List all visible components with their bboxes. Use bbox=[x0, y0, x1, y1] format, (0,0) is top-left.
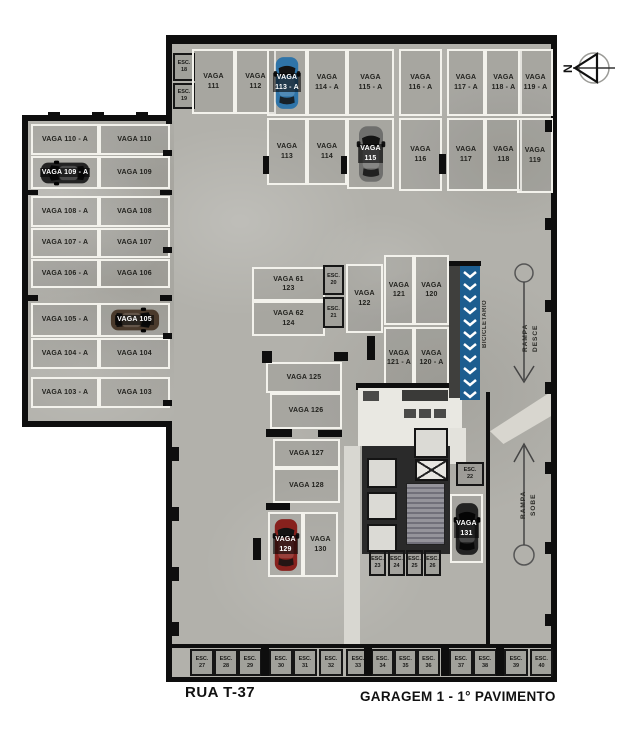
pillar bbox=[545, 120, 552, 132]
wall-top bbox=[166, 35, 557, 44]
pillar bbox=[172, 507, 179, 521]
esc-label: ESC. 18 bbox=[178, 60, 191, 74]
ramp-up-label: RAMPA SOBE bbox=[519, 476, 539, 534]
plan-caption: GARAGEM 1 - 1° PAVIMENTO bbox=[360, 689, 556, 704]
pillar bbox=[163, 247, 172, 253]
esc-label: ESC. 19 bbox=[178, 89, 191, 103]
stall-vaga-118a: VAGA 118 - A bbox=[485, 49, 522, 116]
pillar bbox=[545, 542, 552, 554]
pillar bbox=[261, 648, 269, 676]
stall-vaga-105: VAGA 105 bbox=[99, 303, 170, 337]
stall-vaga-116: VAGA 116 bbox=[399, 118, 442, 191]
stall-vaga-113: VAGA 113 bbox=[267, 118, 307, 185]
stall-vaga-125: VAGA 125 bbox=[266, 362, 342, 393]
corridor-floor bbox=[344, 446, 360, 644]
pillar bbox=[163, 400, 172, 406]
esc-room-39: ESC. 39 bbox=[504, 649, 528, 676]
north-compass: N bbox=[563, 40, 619, 98]
wall-bottom-outer bbox=[166, 677, 557, 682]
stall-vaga-105a: VAGA 105 - A bbox=[31, 303, 99, 337]
pillar bbox=[48, 112, 60, 117]
lobby-table-1 bbox=[404, 409, 416, 418]
stall-vaga-129: VAGA 129 bbox=[268, 512, 303, 577]
esc-room-31: ESC. 31 bbox=[293, 649, 317, 676]
pillar bbox=[341, 156, 347, 174]
esc-room-20: ESC. 20 bbox=[323, 265, 344, 295]
stall-vaga-114: VAGA 114 bbox=[307, 118, 347, 185]
bike-lane bbox=[460, 266, 480, 400]
stall-vaga-104: VAGA 104 bbox=[99, 338, 170, 369]
stall-vaga-131: VAGA 131 bbox=[450, 494, 483, 563]
pillar bbox=[160, 295, 172, 301]
stall-vaga-106: VAGA 106 bbox=[99, 259, 170, 288]
stall-vaga-109: VAGA 109 bbox=[99, 156, 170, 189]
wall-wing-bottom bbox=[22, 421, 172, 427]
lobby-table-3 bbox=[434, 409, 446, 418]
stairwell bbox=[406, 483, 445, 545]
lobby-cabinet bbox=[363, 391, 379, 401]
stall-vaga-127: VAGA 127 bbox=[273, 439, 340, 468]
esc-room-34: ESC. 34 bbox=[371, 649, 394, 676]
compass-n-label: N bbox=[563, 64, 575, 73]
esc-room-38: ESC. 38 bbox=[473, 649, 497, 676]
esc-room-23: ESC. 23 bbox=[369, 550, 386, 576]
bike-chevrons bbox=[460, 266, 480, 400]
stall-vaga-61-123: VAGA 61 123 bbox=[252, 267, 325, 301]
stall-vaga-109a: VAGA 109 - A bbox=[31, 156, 99, 189]
pillar bbox=[545, 382, 552, 394]
pillar bbox=[545, 462, 552, 474]
bike-rack bbox=[449, 266, 460, 398]
lobby-counter bbox=[402, 390, 448, 401]
pillar bbox=[263, 156, 269, 174]
stall-vaga-122: VAGA 122 bbox=[346, 264, 383, 333]
wall-left-upper bbox=[166, 35, 172, 124]
pillar bbox=[441, 648, 449, 676]
pillar bbox=[439, 154, 446, 174]
esc-room-27: ESC. 27 bbox=[190, 649, 214, 676]
stall-vaga-113a: VAGA 113 - A bbox=[267, 49, 307, 116]
pillar bbox=[266, 503, 290, 510]
stall-vaga-110a: VAGA 110 - A bbox=[31, 124, 99, 155]
bike-area-label: BICICLETARIO bbox=[481, 268, 495, 380]
esc-room-21: ESC. 21 bbox=[323, 297, 344, 328]
stall-vaga-104a: VAGA 104 - A bbox=[31, 338, 99, 369]
esc-room-28: ESC. 28 bbox=[214, 649, 238, 676]
stall-vaga-120a: VAGA 120 - A bbox=[414, 327, 449, 389]
esc-room-35: ESC. 35 bbox=[394, 649, 417, 676]
esc-room-24: ESC. 24 bbox=[388, 550, 405, 576]
pillar bbox=[136, 112, 148, 117]
pillar bbox=[262, 351, 272, 363]
stall-vaga-115a: VAGA 115 - A bbox=[347, 49, 394, 116]
stall-vaga-121a: VAGA 121 - A bbox=[384, 327, 414, 389]
stall-vaga-108: VAGA 108 bbox=[99, 196, 170, 227]
pillar bbox=[92, 112, 104, 117]
stall-vaga-103: VAGA 103 bbox=[99, 377, 170, 408]
stall-vaga-107: VAGA 107 bbox=[99, 228, 170, 258]
pillar bbox=[172, 567, 179, 581]
esc-room-25: ESC. 25 bbox=[406, 550, 423, 576]
stall-vaga-103a: VAGA 103 - A bbox=[31, 377, 99, 408]
stall-vaga-117a: VAGA 117 - A bbox=[447, 49, 485, 116]
pillar bbox=[545, 300, 552, 312]
pillar bbox=[334, 352, 348, 361]
esc-room-40: ESC. 40 bbox=[530, 649, 553, 676]
esc-room-29: ESC. 29 bbox=[238, 649, 262, 676]
stall-vaga-107a: VAGA 107 - A bbox=[31, 228, 99, 258]
esc-room-30: ESC. 30 bbox=[269, 649, 293, 676]
pillar bbox=[496, 648, 504, 676]
esc-room-32: ESC. 32 bbox=[319, 649, 343, 676]
esc-room-22: ESC. 22 bbox=[456, 462, 484, 486]
street-label: RUA T-37 bbox=[185, 684, 255, 701]
stall-vaga-116a: VAGA 116 - A bbox=[399, 49, 442, 116]
lobby-side-floor bbox=[450, 428, 466, 464]
stall-vaga-117: VAGA 117 bbox=[447, 118, 485, 191]
wall-ramp-divider bbox=[486, 392, 490, 646]
elevator-cab-3 bbox=[367, 524, 397, 552]
pillar bbox=[318, 430, 342, 437]
stall-vaga-114a: VAGA 114 - A bbox=[307, 49, 347, 116]
pillar bbox=[367, 336, 375, 360]
stall-vaga-126: VAGA 126 bbox=[270, 393, 342, 429]
pillar bbox=[163, 150, 172, 156]
elevator-cab-4 bbox=[414, 428, 448, 458]
pillar bbox=[160, 190, 172, 195]
pillar bbox=[172, 447, 179, 461]
garage-floor-plan: ESC. 18 ESC. 19 VAGA 111 VAGA 112 VAGA 1… bbox=[0, 0, 640, 744]
elevator-shaft bbox=[415, 459, 448, 481]
wall-wing-left bbox=[22, 115, 28, 427]
pillar bbox=[253, 538, 261, 560]
bike-top-wall bbox=[449, 261, 481, 266]
stall-vaga-108a: VAGA 108 - A bbox=[31, 196, 99, 227]
stall-vaga-130: VAGA 130 bbox=[303, 512, 338, 577]
pillar bbox=[28, 295, 38, 301]
pillar bbox=[545, 614, 552, 626]
ramp-down-label: RAMPA DESCE bbox=[521, 308, 541, 368]
stall-vaga-115: VAGA 115 bbox=[347, 118, 394, 189]
lobby-table-2 bbox=[419, 409, 431, 418]
pillar bbox=[545, 218, 552, 230]
esc-room-36: ESC. 36 bbox=[417, 649, 440, 676]
stall-vaga-111: VAGA 111 bbox=[192, 49, 235, 114]
stall-vaga-128: VAGA 128 bbox=[273, 468, 340, 503]
pillar bbox=[28, 190, 38, 195]
stall-vaga-121: VAGA 121 bbox=[384, 255, 414, 325]
pillar bbox=[172, 622, 179, 636]
stall-vaga-119a: VAGA 119 - A bbox=[518, 49, 553, 116]
stall-vaga-62-124: VAGA 62 124 bbox=[252, 301, 325, 336]
elevator-cab-1 bbox=[367, 458, 397, 488]
esc-room-26: ESC. 26 bbox=[424, 550, 441, 576]
esc-room-37: ESC. 37 bbox=[449, 649, 473, 676]
elevator-cab-2 bbox=[367, 492, 397, 520]
stall-vaga-106a: VAGA 106 - A bbox=[31, 259, 99, 288]
pillar bbox=[364, 648, 372, 676]
stall-vaga-120: VAGA 120 bbox=[414, 255, 449, 325]
pillar bbox=[266, 429, 292, 437]
stall-vaga-110: VAGA 110 bbox=[99, 124, 170, 155]
